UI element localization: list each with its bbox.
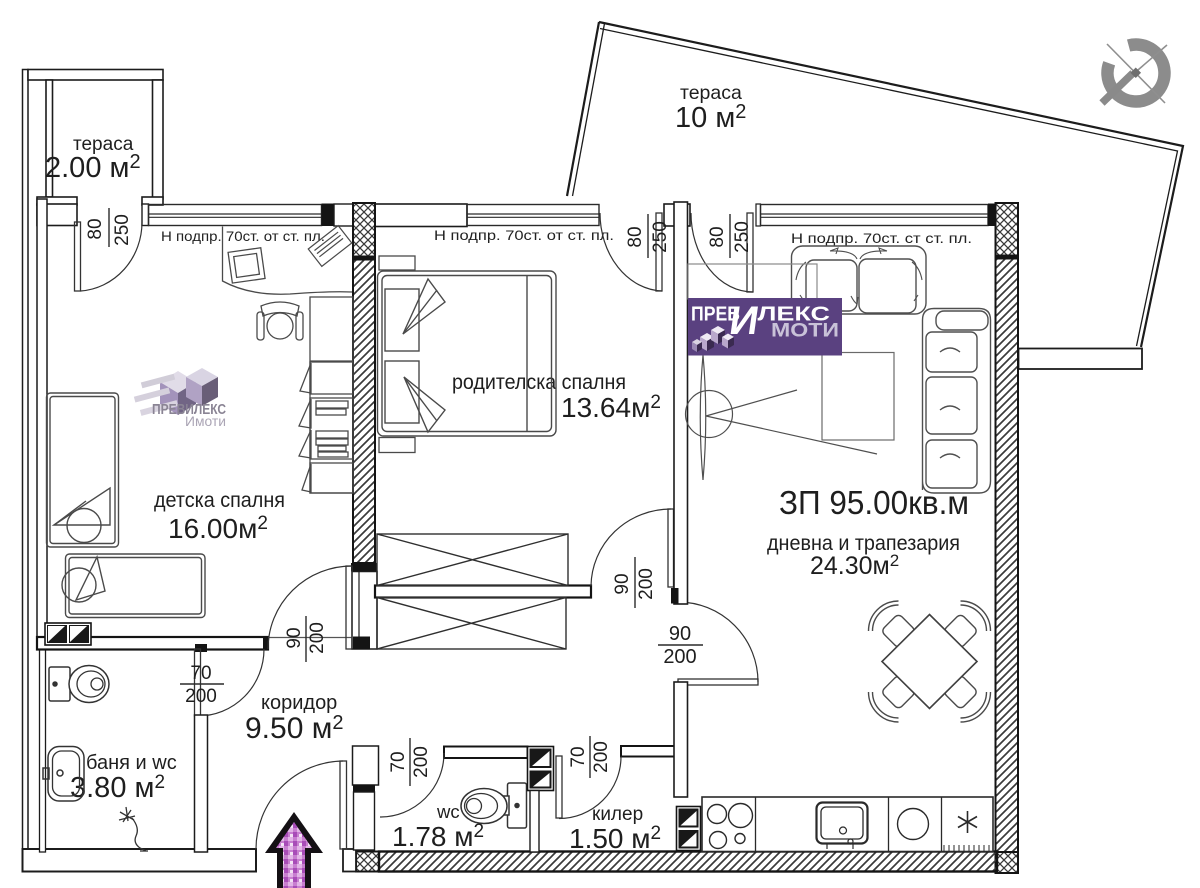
svg-text:250: 250	[732, 221, 753, 253]
svg-text:тераса: тераса	[680, 82, 742, 104]
svg-text:24.30м2: 24.30м2	[810, 551, 899, 580]
svg-text:13.64м2: 13.64м2	[561, 392, 661, 423]
svg-text:ЗП 95.00кв.м: ЗП 95.00кв.м	[779, 484, 969, 521]
svg-text:коридор: коридор	[261, 692, 337, 714]
svg-text:детска спалня: детска спалня	[154, 489, 285, 512]
svg-text:90: 90	[612, 573, 633, 594]
svg-text:Н подпр. 70ст. ст ст. пл.: Н подпр. 70ст. ст ст. пл.	[791, 230, 972, 246]
svg-text:2.00 м2: 2.00 м2	[45, 151, 141, 184]
svg-text:килер: килер	[592, 804, 643, 825]
svg-text:200: 200	[663, 646, 696, 668]
svg-text:200: 200	[411, 746, 432, 778]
svg-text:МОТИ: МОТИ	[771, 321, 839, 342]
svg-text:250: 250	[650, 221, 671, 253]
svg-text:90: 90	[284, 627, 305, 648]
svg-text:90: 90	[669, 623, 691, 645]
svg-text:200: 200	[185, 686, 217, 707]
svg-text:Н подпр. 70ст. от ст. пл.: Н подпр. 70ст. от ст. пл.	[434, 227, 614, 243]
svg-text:1.78 м2: 1.78 м2	[392, 821, 484, 852]
svg-text:баня и wc: баня и wc	[86, 752, 177, 774]
svg-text:wc: wc	[436, 801, 460, 822]
svg-text:80: 80	[85, 218, 106, 239]
svg-text:Имоти: Имоти	[185, 413, 226, 429]
svg-text:1.50 м2: 1.50 м2	[569, 823, 661, 854]
svg-text:250: 250	[112, 214, 133, 246]
svg-text:80: 80	[707, 226, 728, 247]
svg-text:80: 80	[625, 226, 646, 247]
svg-text:200: 200	[591, 741, 612, 773]
svg-text:70: 70	[388, 751, 409, 772]
svg-text:70: 70	[568, 746, 589, 767]
svg-text:200: 200	[307, 622, 328, 654]
svg-text:70: 70	[190, 663, 211, 684]
svg-text:родителска спалня: родителска спалня	[452, 371, 626, 394]
svg-text:200: 200	[636, 568, 657, 600]
svg-text:9.50 м2: 9.50 м2	[245, 712, 343, 745]
svg-text:Н подпр. 70ст. от ст. пл.: Н подпр. 70ст. от ст. пл.	[161, 228, 325, 244]
svg-text:16.00м2: 16.00м2	[168, 513, 268, 544]
